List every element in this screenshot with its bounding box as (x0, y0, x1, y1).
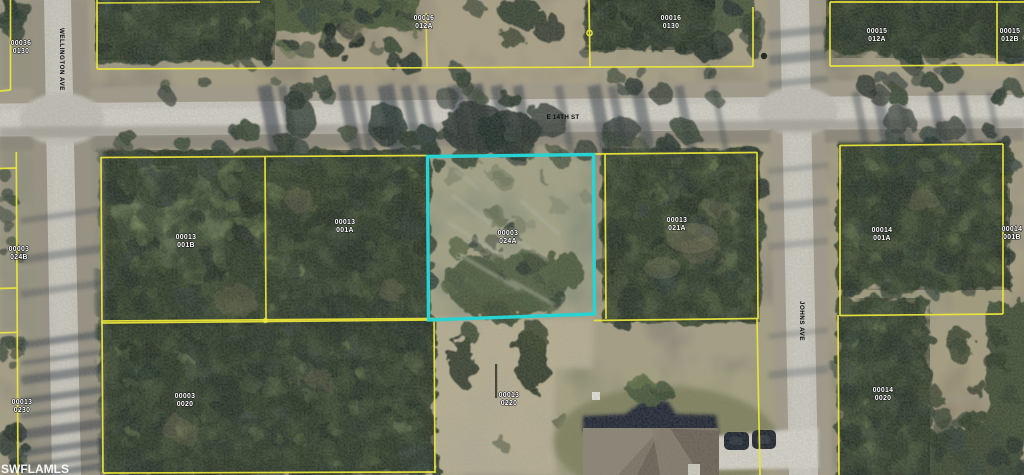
svg-text:SWFLAMLS: SWFLAMLS (1, 462, 69, 475)
svg-text:0020: 0020 (177, 401, 194, 408)
svg-text:012A: 012A (868, 36, 886, 43)
svg-text:012A: 012A (415, 23, 433, 30)
svg-text:021A: 021A (668, 225, 686, 232)
svg-text:024B: 024B (10, 254, 28, 261)
svg-text:001A: 001A (336, 227, 354, 234)
svg-text:00013: 00013 (667, 217, 688, 224)
svg-text:00014: 00014 (1002, 226, 1023, 233)
svg-text:001B: 001B (177, 242, 195, 249)
svg-text:00013: 00013 (176, 234, 197, 241)
svg-text:024A: 024A (499, 238, 517, 245)
svg-text:00016: 00016 (661, 15, 682, 22)
svg-text:E 14TH ST: E 14TH ST (547, 114, 580, 121)
svg-text:001B: 001B (1003, 234, 1021, 241)
svg-text:00014: 00014 (873, 387, 894, 394)
svg-text:WELLINGTON AVE: WELLINGTON AVE (58, 28, 65, 91)
svg-text:00014: 00014 (872, 227, 893, 234)
svg-text:00003: 00003 (9, 246, 30, 253)
svg-text:00015: 00015 (1000, 28, 1021, 35)
svg-text:0130: 0130 (13, 48, 30, 55)
svg-text:012B: 012B (1001, 36, 1019, 43)
svg-text:00016: 00016 (414, 15, 435, 22)
svg-text:00003: 00003 (175, 393, 196, 400)
svg-text:00013: 00013 (499, 392, 520, 399)
svg-text:00013: 00013 (12, 399, 33, 406)
svg-text:00015: 00015 (867, 28, 888, 35)
svg-text:JOHNS AVE: JOHNS AVE (798, 301, 805, 341)
svg-text:0220: 0220 (501, 400, 518, 407)
svg-text:00013: 00013 (335, 219, 356, 226)
svg-text:0020: 0020 (875, 395, 892, 402)
svg-text:00036: 00036 (11, 40, 32, 47)
svg-text:00003: 00003 (498, 230, 519, 237)
svg-text:0230: 0230 (14, 407, 31, 414)
svg-text:0130: 0130 (663, 23, 680, 30)
svg-text:001A: 001A (873, 235, 891, 242)
